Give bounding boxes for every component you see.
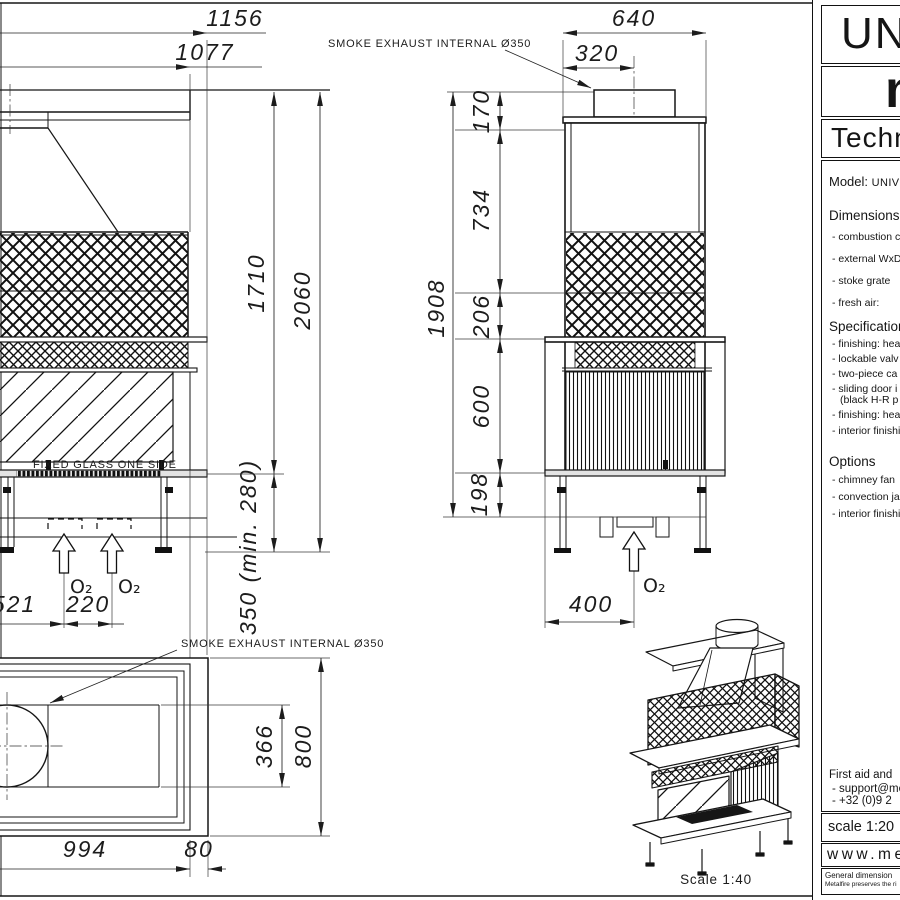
dim-top-frame-width: 80 — [184, 836, 214, 862]
front-mantel-plate — [0, 337, 207, 342]
front-mesh-band — [0, 233, 188, 337]
isometric-view: Scale 1:40 — [630, 620, 799, 888]
smoke-exhaust-callout: SMOKE EXHAUST INTERNAL Ø350 — [181, 638, 384, 650]
dim-front-floor-clearance: 350 (min. 280) — [235, 459, 261, 635]
front-view: O₂ O₂ — [0, 84, 330, 628]
brand-logo: m — [821, 66, 900, 117]
smoke-exhaust-callout: SMOKE EXHAUST INTERNAL Ø350 — [328, 38, 531, 50]
dim-side-flue-offset: 320 — [575, 40, 619, 66]
contact-line: - support@me — [832, 783, 900, 795]
specification-item: - lockable valv — [832, 353, 899, 365]
fixed-glass-label: FIXED GLASS ONE SIDE — [33, 459, 177, 471]
side-flue-collar — [594, 90, 675, 117]
options-item: - chimney fan — [832, 474, 895, 486]
specification-item: - finishing: hea — [832, 409, 900, 421]
options-item: - convection ja — [832, 491, 900, 503]
specification-item: - finishing: hea — [832, 338, 900, 350]
model-line: Model: UNIV — [829, 174, 900, 189]
o2-label: O₂ — [643, 575, 666, 597]
dim-front-height-total: 2060 — [289, 270, 315, 330]
dimensions-item: - fresh air: — [832, 297, 879, 309]
top-view: SMOKE EXHAUST INTERNAL Ø350 366 800 994 … — [0, 638, 384, 877]
spec-panel: Model: UNIV Dimensions - combustion c - … — [821, 160, 900, 812]
dim-side-o2-offset: 400 — [569, 591, 613, 617]
model-value: UNIV — [872, 177, 900, 189]
contact-line: First aid and — [829, 769, 892, 781]
specification-heading: Specification — [829, 319, 900, 334]
fineprint-line: General dimension — [825, 871, 900, 880]
front-burner-outline — [48, 519, 131, 529]
dimensions-item: - combustion c — [832, 231, 900, 243]
fineprint-line: Metalfire preserves the ri — [825, 880, 900, 889]
dim-side-height-total: 1908 — [423, 278, 449, 337]
options-heading: Options — [829, 454, 876, 469]
model-label: Model: — [829, 174, 868, 189]
dim-side-firebox-height: 600 — [468, 384, 494, 428]
dimensions-item: - external WxD — [832, 253, 900, 265]
specification-item: - interior finishi — [832, 425, 900, 437]
title-block: UNIV m Techn Model: UNIV Dimensions - co… — [812, 0, 900, 900]
side-mesh-band — [566, 233, 704, 293]
dim-side-depth-total: 640 — [612, 5, 656, 31]
title-product-line: UNIV — [821, 5, 900, 64]
technical-drawing-sheet: O₂ O₂ 1156 1077 1710 2060 350 (min. 280)… — [0, 0, 900, 900]
air-inlet-arrow — [53, 534, 75, 573]
options-item: - interior finishi — [832, 508, 900, 520]
dimensions-item: - stoke grate — [832, 275, 890, 287]
dim-front-o2-spacing: 220 — [65, 591, 110, 617]
o2-label: O₂ — [118, 576, 141, 598]
drawing-area: O₂ O₂ 1156 1077 1710 2060 350 (min. 280)… — [0, 0, 812, 900]
side-view: O₂ — [447, 56, 725, 628]
front-legs — [0, 477, 173, 553]
dim-front-left-offset: 521 — [0, 591, 36, 617]
dim-side-collar-height: 170 — [468, 89, 494, 133]
dim-front-total-width: 1156 — [206, 5, 263, 31]
website-row: www.met — [821, 843, 900, 867]
air-inlet-arrow — [623, 532, 645, 571]
dimensions-heading: Dimensions — [829, 208, 900, 223]
iso-scale-label: Scale 1:40 — [680, 872, 752, 887]
dim-top-opening-depth: 366 — [251, 724, 277, 768]
contact-line: - +32 (0)9 2 — [832, 795, 892, 807]
air-inlet-arrow — [101, 534, 123, 573]
dim-front-height-upper: 1710 — [243, 253, 269, 312]
front-burner-grill — [16, 471, 162, 477]
side-slat-panel — [566, 372, 704, 471]
dim-side-base-height: 198 — [466, 472, 492, 516]
specification-item: - two-piece ca — [832, 368, 897, 380]
dim-top-body-width: 994 — [63, 836, 107, 862]
front-glass-panel — [0, 372, 173, 462]
side-mantel-plate — [545, 337, 725, 342]
dim-top-depth-total: 800 — [290, 724, 316, 768]
dim-front-body-width: 1077 — [175, 39, 234, 65]
scale-row: scale 1:20 — [821, 813, 900, 842]
doc-type: Techn — [821, 119, 900, 158]
dim-side-mesh-band: 206 — [468, 294, 494, 339]
dim-side-hood-height: 734 — [468, 188, 494, 232]
fineprint-row: General dimension Metalfire preserves th… — [821, 868, 900, 895]
specification-item: (black H-R p — [840, 394, 898, 406]
